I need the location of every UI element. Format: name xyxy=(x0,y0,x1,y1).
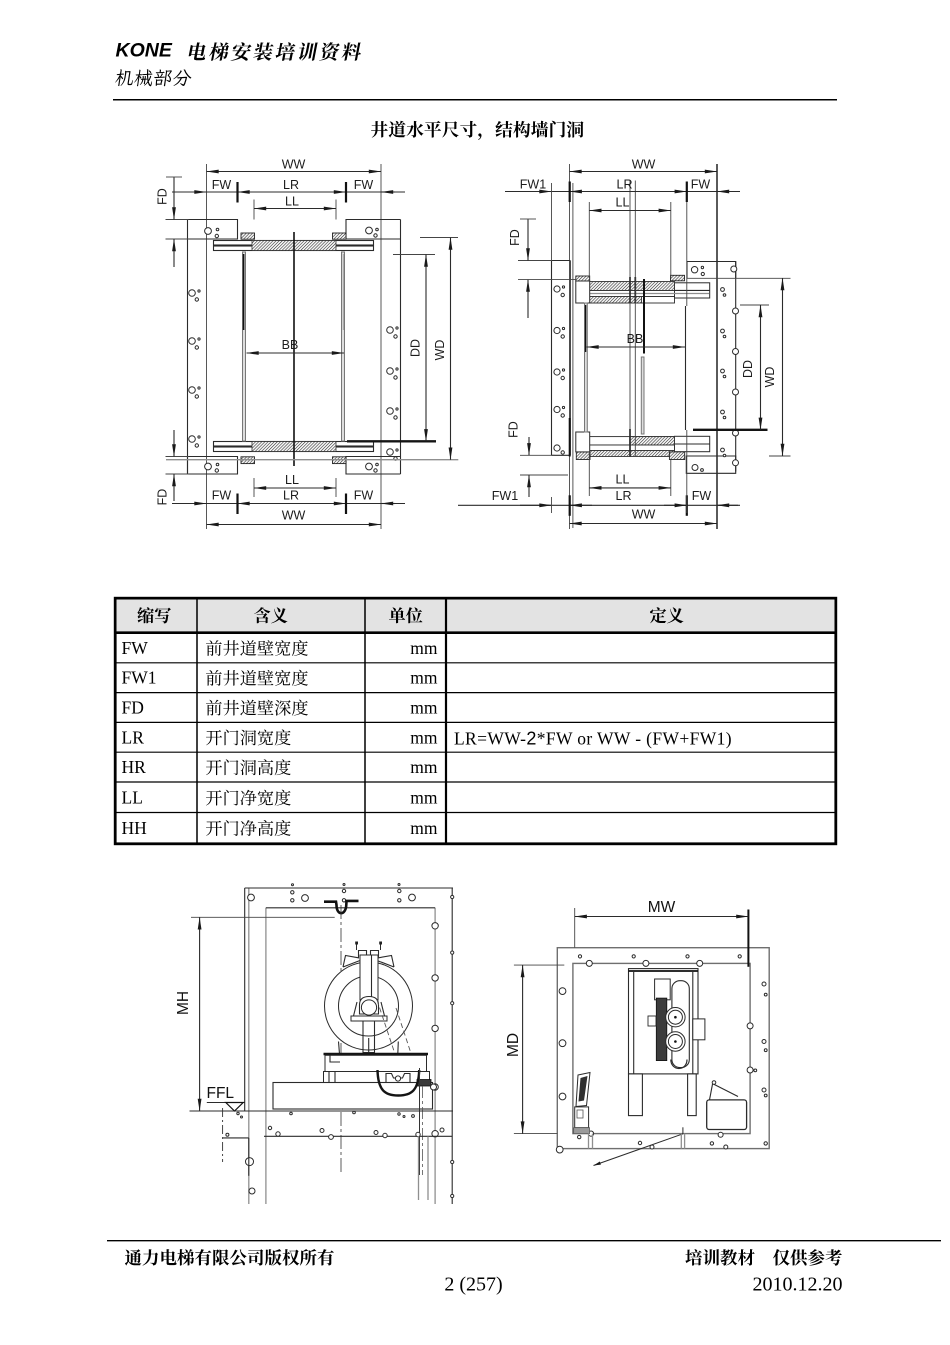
svg-text:DD: DD xyxy=(409,339,423,357)
svg-text:mm: mm xyxy=(410,698,438,718)
svg-text:LR: LR xyxy=(283,489,299,503)
svg-text:FD: FD xyxy=(508,229,522,246)
svg-text:WD: WD xyxy=(433,340,447,361)
svg-text:FD: FD xyxy=(507,421,521,438)
svg-text:2 (257): 2 (257) xyxy=(444,1274,502,1296)
svg-text:FW: FW xyxy=(354,489,374,503)
svg-text:HR: HR xyxy=(122,757,147,777)
svg-text:LL: LL xyxy=(285,195,299,209)
svg-text:FW: FW xyxy=(122,638,149,658)
svg-text:FW1: FW1 xyxy=(122,668,157,688)
svg-text:LR=WW-2*FW or WW - (FW+FW1): LR=WW-2*FW or WW - (FW+FW1) xyxy=(454,728,732,748)
svg-text:mm: mm xyxy=(410,818,438,838)
svg-text:LR: LR xyxy=(617,177,633,191)
svg-text:FW: FW xyxy=(212,489,232,503)
svg-text:MH: MH xyxy=(175,991,192,1015)
svg-text:LR: LR xyxy=(122,727,145,747)
svg-text:LR: LR xyxy=(283,178,299,192)
svg-text:FW: FW xyxy=(692,489,712,503)
svg-text:FW: FW xyxy=(212,178,232,192)
svg-text:WW: WW xyxy=(632,508,656,522)
svg-text:FFL: FFL xyxy=(207,1085,235,1102)
svg-text:BB: BB xyxy=(627,332,644,346)
svg-text:FW: FW xyxy=(354,178,374,192)
svg-text:WW: WW xyxy=(282,158,306,172)
svg-text:FW: FW xyxy=(691,177,711,191)
svg-text:DD: DD xyxy=(741,360,755,378)
svg-text:MW: MW xyxy=(648,899,676,916)
svg-text:HH: HH xyxy=(122,818,148,838)
svg-text:LL: LL xyxy=(616,196,630,210)
svg-text:FW1: FW1 xyxy=(492,489,518,503)
svg-text:WW: WW xyxy=(282,509,306,523)
svg-text:mm: mm xyxy=(410,757,438,777)
svg-text:MD: MD xyxy=(505,1033,522,1057)
svg-text:LL: LL xyxy=(285,473,299,487)
svg-text:mm: mm xyxy=(410,788,438,808)
svg-text:mm: mm xyxy=(410,727,438,747)
svg-text:LR: LR xyxy=(616,489,632,503)
svg-text:BB: BB xyxy=(282,338,299,352)
svg-text:KONE: KONE xyxy=(116,40,173,62)
svg-text:LL: LL xyxy=(122,788,143,808)
svg-text:LL: LL xyxy=(616,473,630,487)
svg-text:mm: mm xyxy=(410,668,438,688)
svg-text:FD: FD xyxy=(122,698,144,718)
svg-text:mm: mm xyxy=(410,638,438,658)
svg-text:2010.12.20: 2010.12.20 xyxy=(753,1274,843,1296)
svg-text:WD: WD xyxy=(763,367,777,388)
svg-text:FW1: FW1 xyxy=(520,177,546,191)
svg-text:FD: FD xyxy=(156,489,170,506)
svg-text:FD: FD xyxy=(156,188,170,205)
svg-text:WW: WW xyxy=(632,158,656,172)
